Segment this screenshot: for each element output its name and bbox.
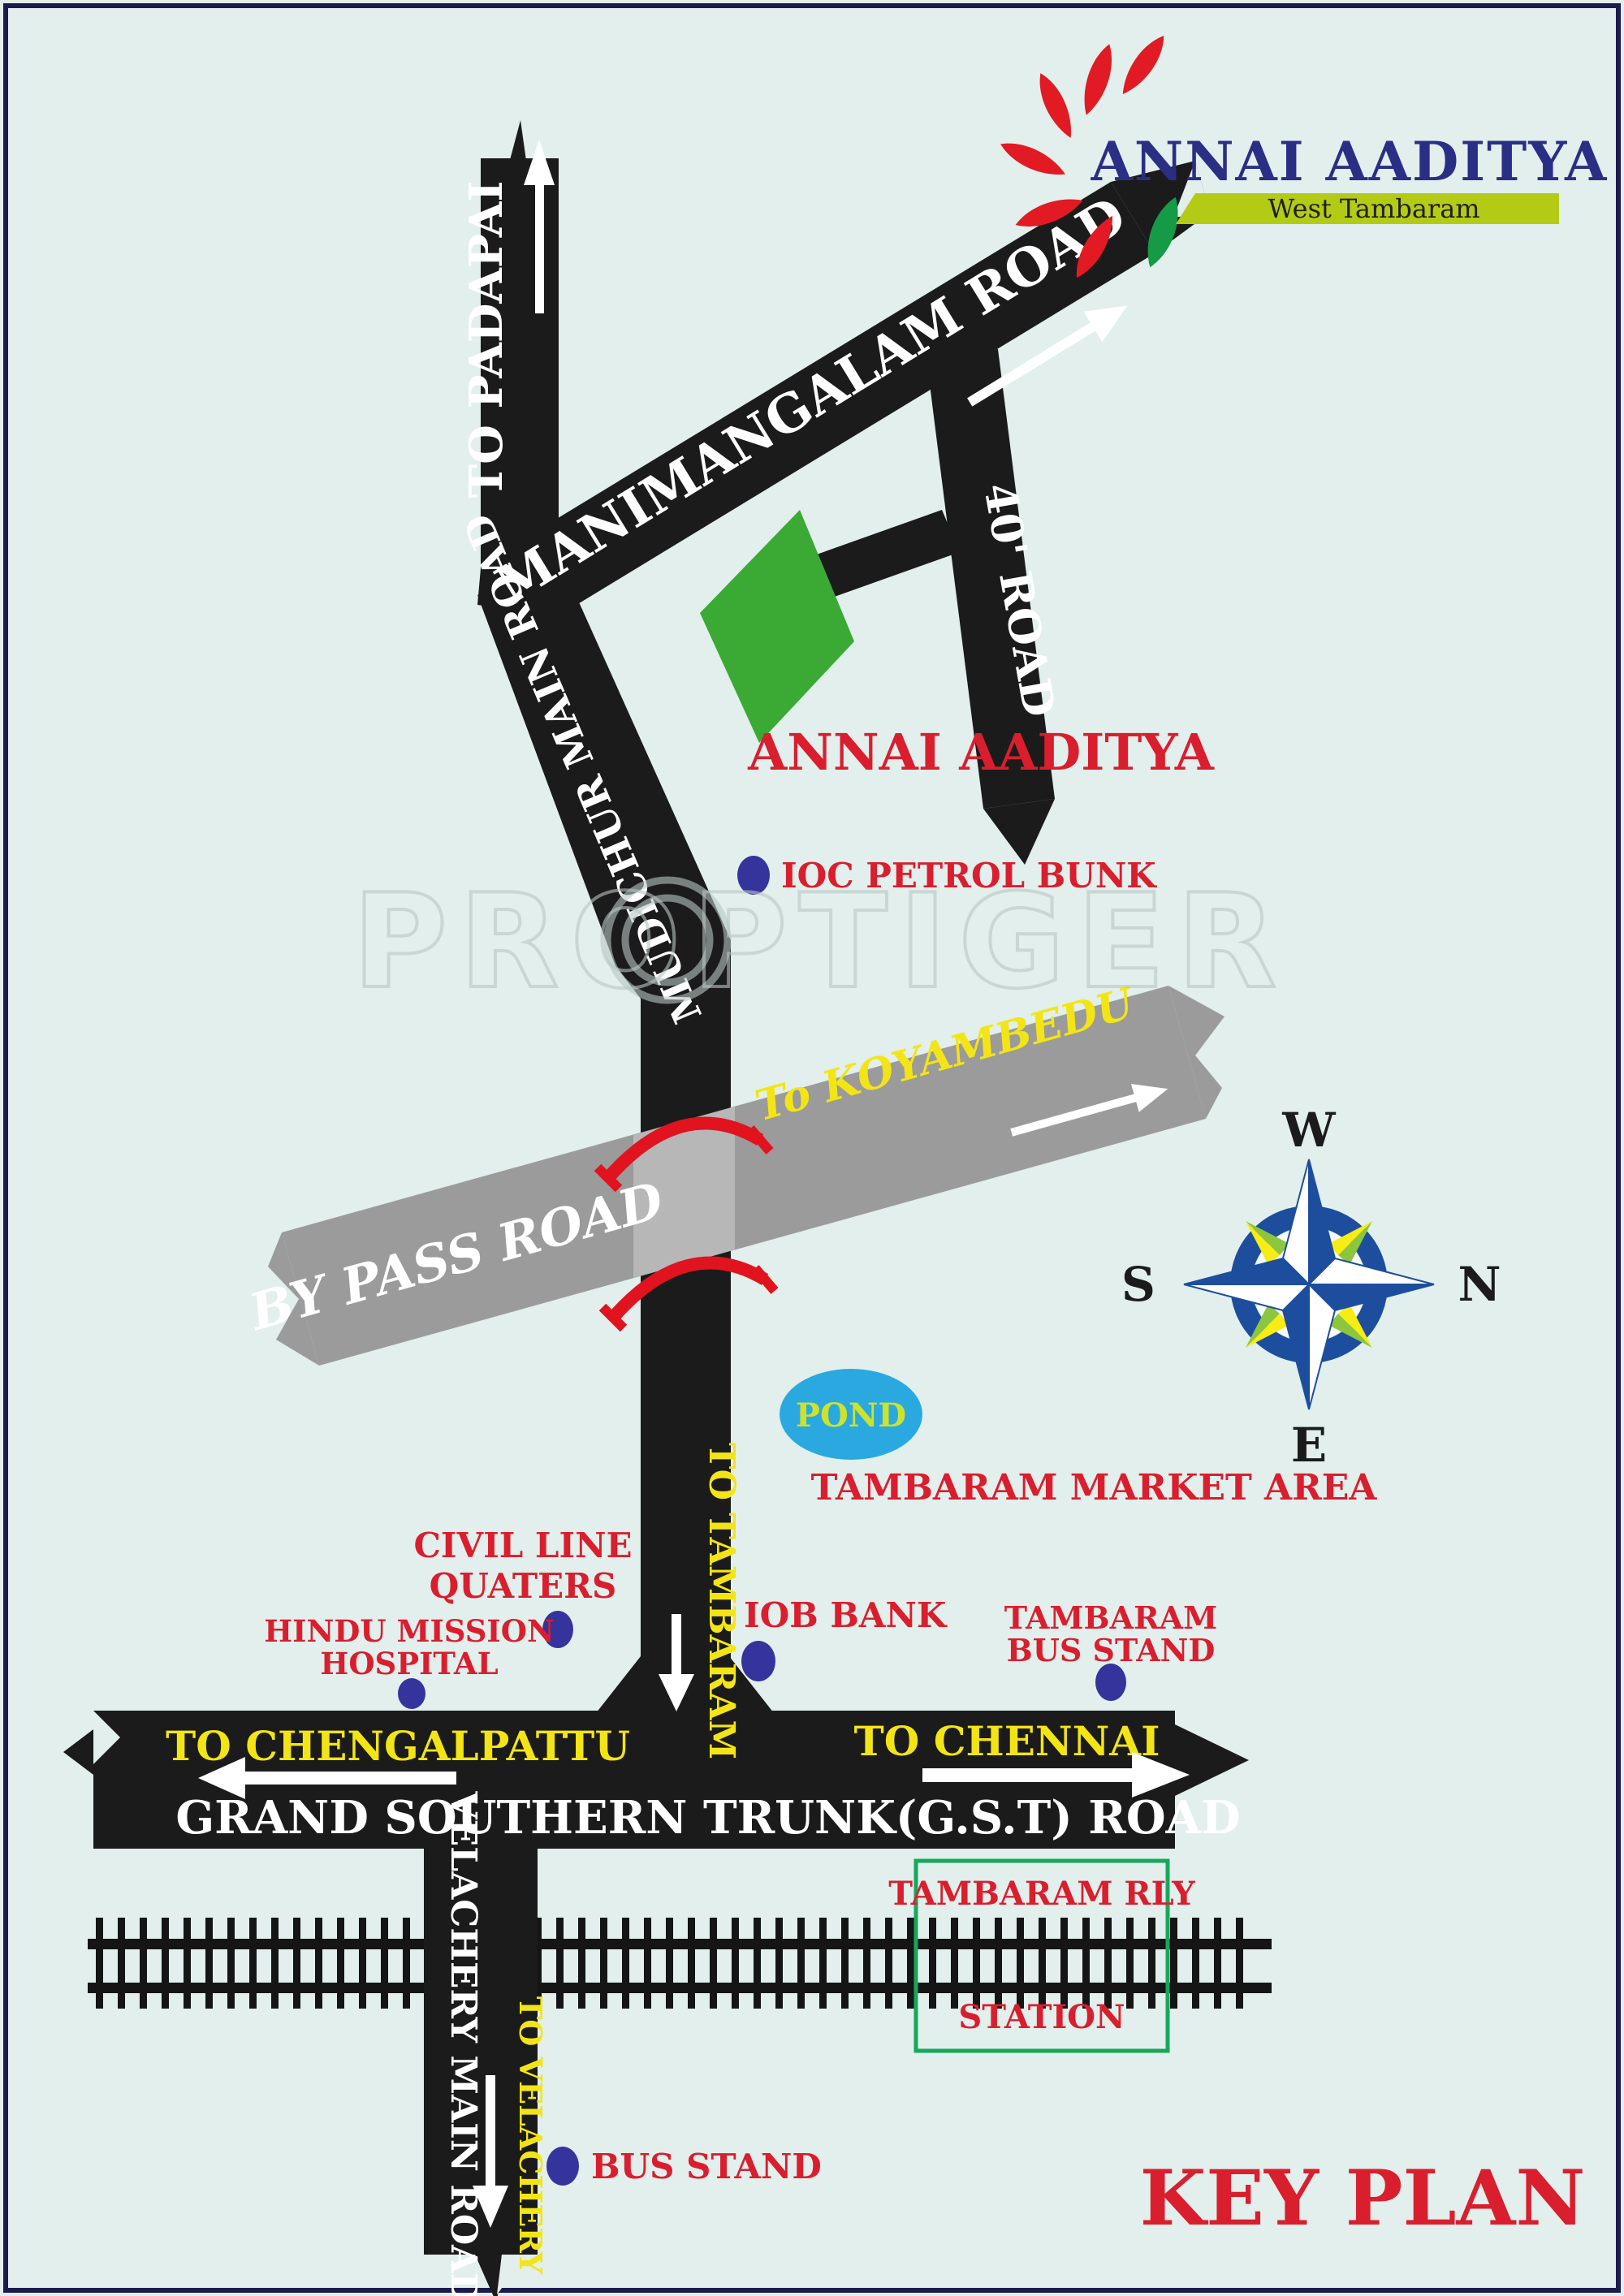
key-plan-title: KEY PLAN [1140, 2154, 1586, 2243]
market-label: TAMBARAM MARKET AREA [811, 1467, 1378, 1508]
railway-tie [885, 1918, 892, 2009]
railway-tie [1082, 1918, 1090, 2009]
railway-tie [184, 1918, 191, 2009]
to-padapai-label: TO PADAPAI [460, 180, 513, 498]
railway-tie [1170, 1918, 1177, 2009]
logo-subtitle: West Tambaram [1268, 193, 1479, 224]
pond: POND [780, 1369, 922, 1460]
railway-tie [841, 1918, 849, 2009]
railway-tie [359, 1918, 366, 2009]
railway-tie [1126, 1918, 1134, 2009]
watermark-text: PROPTIGER [352, 865, 1288, 1017]
tambaram-bus-stand-label-2: BUS STAND [1007, 1632, 1216, 1668]
railway-tie [600, 1918, 607, 2009]
velachery-label: VELACHERY MAIN ROAD [443, 1791, 484, 2296]
railway-tie [1060, 1918, 1068, 2009]
railway-tie [754, 1918, 761, 2009]
railway-tie [775, 1918, 783, 2009]
railway-tie [227, 1918, 235, 2009]
railway-tie [688, 1918, 695, 2009]
to-tambaram-label: TO TAMBARAM [701, 1443, 742, 1759]
to-chennai-label: TO CHENNAI [854, 1717, 1160, 1765]
bus-stand-label: BUS STAND [591, 2147, 822, 2186]
railway-tie [732, 1918, 739, 2009]
railway-tie [1214, 1918, 1221, 2009]
railway-rail-bottom [88, 1983, 1272, 1993]
tambaram-bus-stand-label-1: TAMBARAM [1004, 1599, 1217, 1636]
watermark: PROPTIGER [352, 865, 1288, 1017]
railway-tie [140, 1918, 147, 2009]
railway-tie [205, 1918, 213, 2009]
railway-tie [710, 1918, 717, 2009]
railway-tie [797, 1918, 805, 2009]
railway-tie [995, 1918, 1002, 2009]
iob-dot [741, 1641, 775, 1681]
hospital-label-2: HOSPITAL [320, 1646, 498, 1681]
railway-tie [1039, 1918, 1046, 2009]
compass-north: N [1458, 1257, 1501, 1312]
railway-tie [578, 1918, 585, 2009]
railway-tie [666, 1918, 673, 2009]
compass-east: E [1291, 1418, 1327, 1473]
plot-label: ANNAI AADITYA [747, 723, 1215, 782]
railway-tie [556, 1918, 564, 2009]
gst-label: GRAND SOUTHERN TRUNK(G.S.T) ROAD [175, 1791, 1240, 1845]
railway-tie [293, 1918, 300, 2009]
railway-tie [1148, 1918, 1155, 2009]
railway-tie [1017, 1918, 1024, 2009]
railway-tie [315, 1918, 322, 2009]
railway-tie [271, 1918, 279, 2009]
station-label-2: STATION [958, 1998, 1125, 2036]
hospital-dot [398, 1678, 425, 1709]
railway-tie [929, 1918, 936, 2009]
railway-tie [863, 1918, 870, 2009]
compass-west: W [1281, 1103, 1336, 1158]
to-velachery-label: TO VELACHERY [512, 1996, 549, 2275]
railway-tie [1192, 1918, 1199, 2009]
railway-tie [907, 1918, 914, 2009]
railway-tie [951, 1918, 958, 2009]
railway-tie [96, 1918, 103, 2009]
railway-tie [118, 1918, 125, 2009]
railway-tie [1236, 1918, 1243, 2009]
railway-tie [644, 1918, 651, 2009]
civil-line-label-1: CIVIL LINE [413, 1526, 632, 1565]
railway-tie [973, 1918, 980, 2009]
station-label-1: TAMBARAM RLY [888, 1875, 1195, 1913]
railway-tie [337, 1918, 344, 2009]
pond-label: POND [796, 1396, 906, 1435]
bus-stand-dot [546, 2147, 579, 2186]
railway-tie [1104, 1918, 1112, 2009]
railway-tie [819, 1918, 827, 2009]
railway-tie [162, 1918, 169, 2009]
compass-south: S [1121, 1257, 1155, 1312]
railway-tie [249, 1918, 257, 2009]
civil-line-label-2: QUATERS [430, 1566, 617, 1606]
tambaram-bus-stand-dot [1095, 1664, 1126, 1701]
railway-tie [403, 1918, 410, 2009]
logo-title: ANNAI AADITYA [1091, 130, 1609, 193]
railway-tie [622, 1918, 629, 2009]
railway-rail-top [88, 1939, 1272, 1949]
iob-label: IOB BANK [744, 1595, 948, 1635]
hospital-label-1: HINDU MISSION [264, 1613, 555, 1649]
railway-tie [381, 1918, 388, 2009]
key-plan-page: POND TAMBARAM RLY STATION ANNAI AADITYA … [0, 0, 1624, 2296]
